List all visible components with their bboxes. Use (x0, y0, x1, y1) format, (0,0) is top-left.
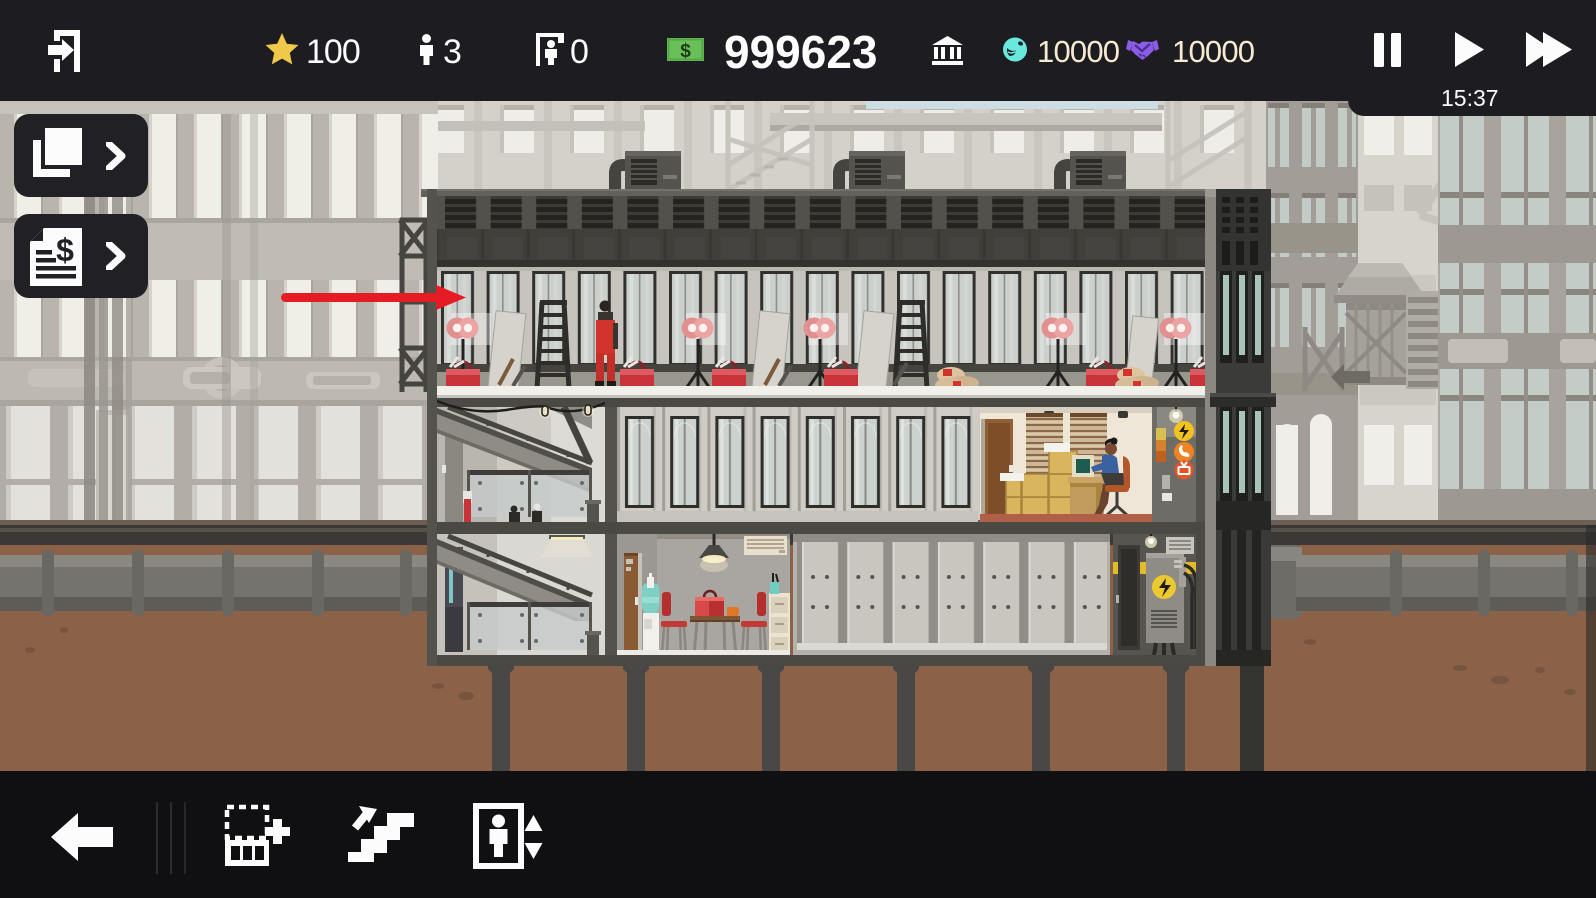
svg-text:$: $ (56, 232, 74, 268)
svg-text:$: $ (680, 41, 691, 61)
